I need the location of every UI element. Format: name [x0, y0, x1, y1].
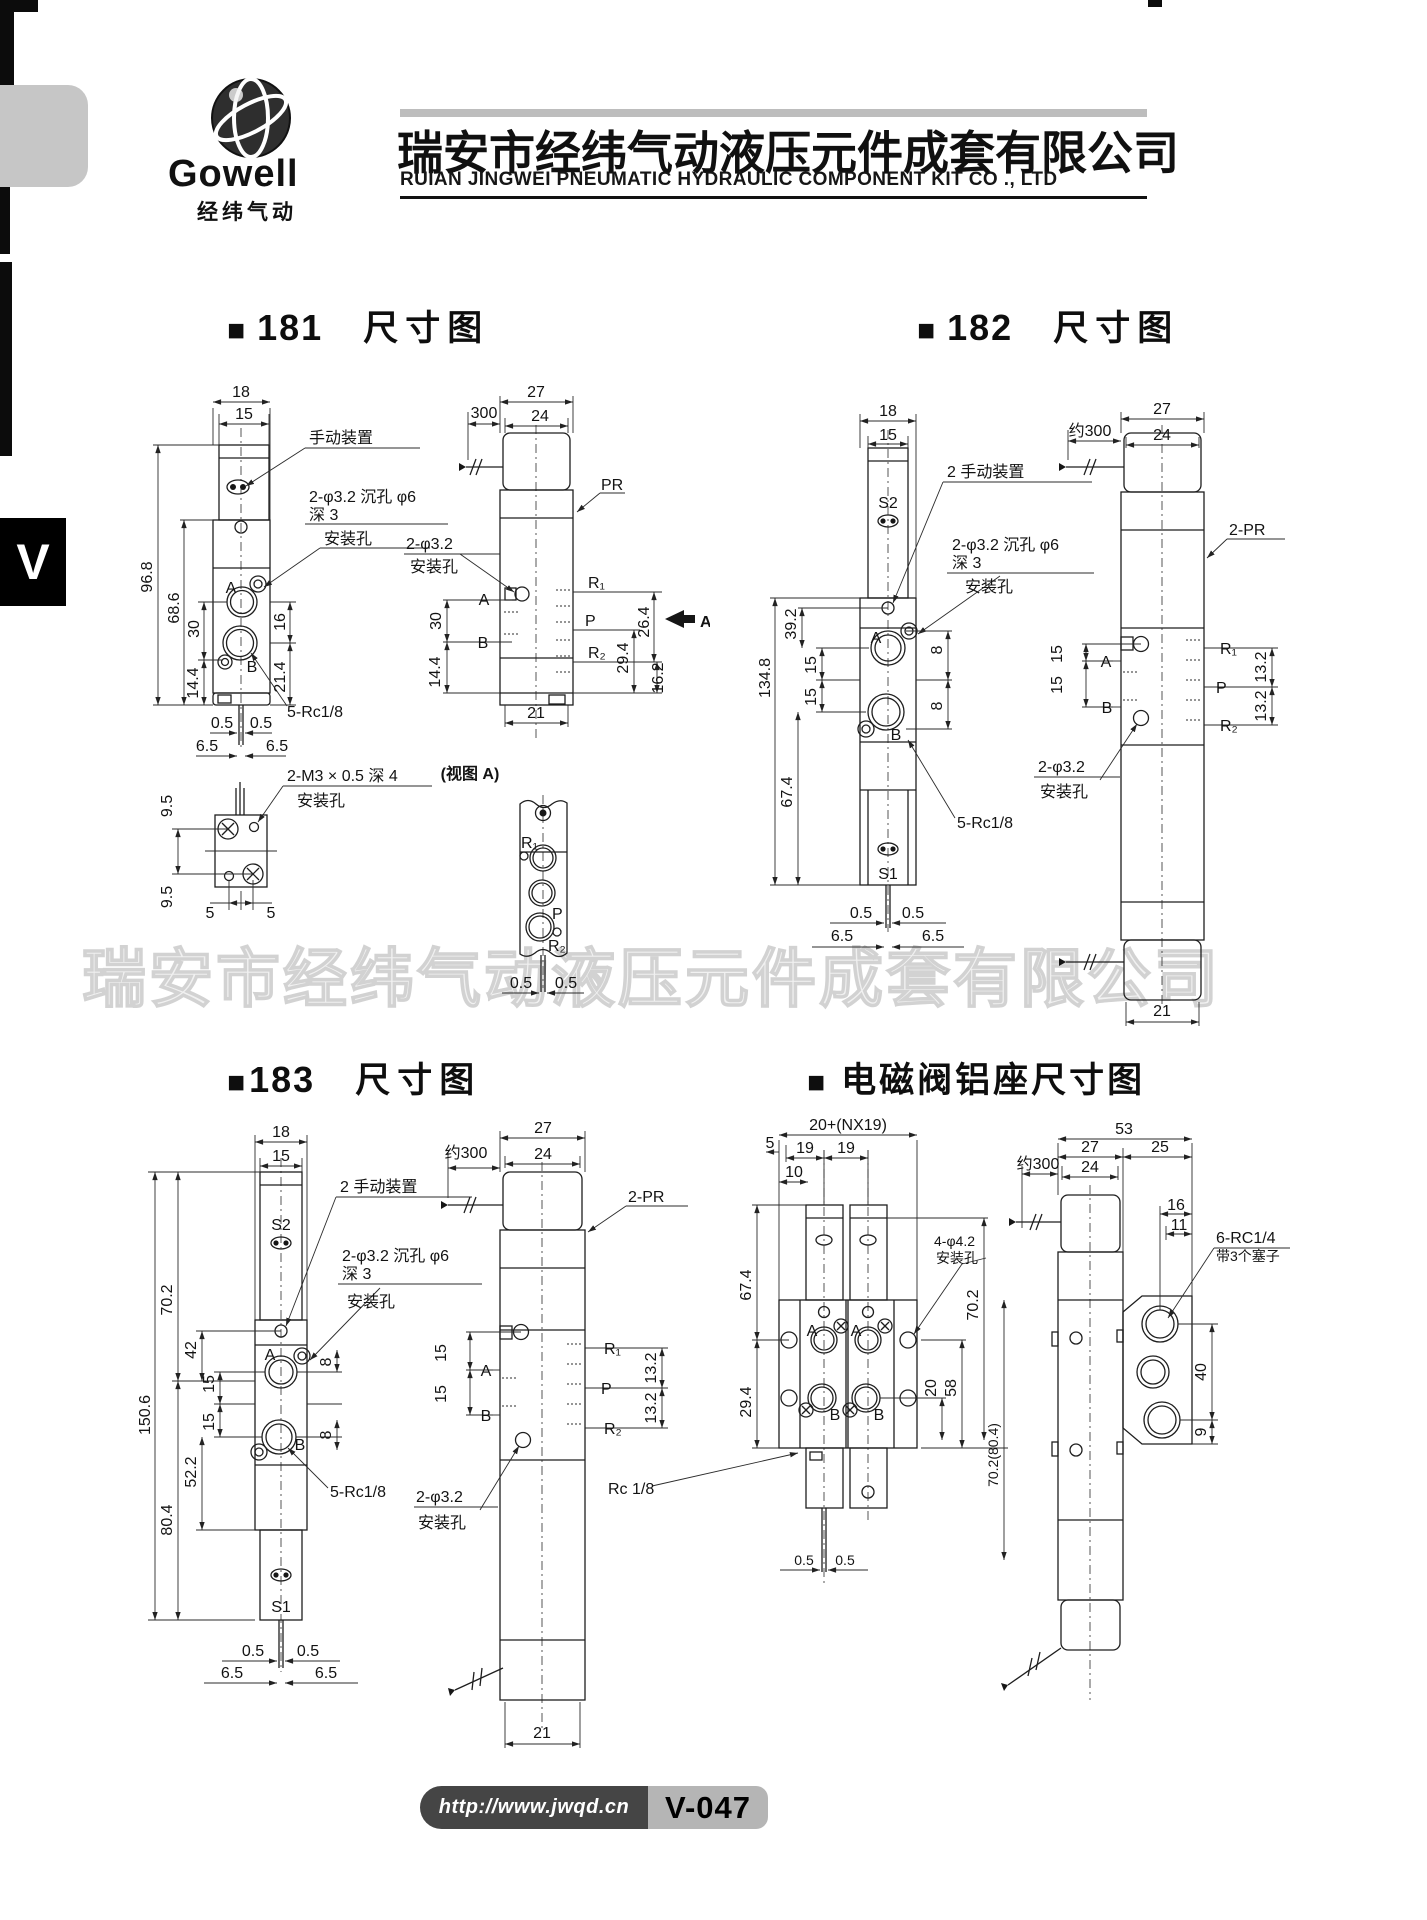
view-a-caption: (视图 A) — [441, 764, 500, 783]
dim: 13.2 — [1253, 690, 1270, 721]
annotation-rc: Rc 1/8 — [608, 1481, 654, 1498]
dim: 8 — [318, 1357, 335, 1366]
dim: 9.5 — [159, 886, 176, 908]
dim: 26.4 — [636, 606, 653, 637]
port-label: A — [807, 1323, 818, 1340]
logo-wordmark: Gowell — [168, 153, 299, 196]
port-label: A — [481, 1363, 492, 1380]
dim: 5 — [267, 905, 276, 922]
annotation-mount-hole: 安装孔 — [936, 1250, 978, 1266]
dim: 9.5 — [159, 795, 176, 817]
thread-hatch — [504, 590, 571, 672]
footer-url: http://www.jwqd.cn — [420, 1786, 648, 1829]
corner-decoration — [0, 85, 88, 187]
thread-hatch — [1123, 640, 1202, 720]
logo-subtext: 经纬气动 — [197, 196, 297, 226]
port-label: A — [1101, 654, 1112, 671]
dim: 70.2 — [965, 1289, 982, 1320]
dim: 0.5 — [794, 1552, 814, 1568]
port-label-r2: R₂ — [588, 645, 606, 662]
dim: 15 — [201, 1375, 218, 1393]
dim: 0.5 — [510, 975, 532, 992]
dim: 67.4 — [738, 1269, 755, 1300]
dim: 29.4 — [738, 1386, 755, 1417]
dim: 150.6 — [137, 1395, 154, 1435]
dims-182-front — [770, 414, 1094, 947]
section-title-183: ■ 183 尺寸图 — [227, 1052, 481, 1103]
port-label: B — [1102, 700, 1113, 717]
annotation-mount-hole: 安装孔 — [324, 530, 372, 548]
port-label: B — [830, 1407, 841, 1424]
dim: 21 — [527, 705, 545, 722]
thread-hatch — [502, 1344, 583, 1424]
port-label: B — [247, 659, 258, 676]
port-label-r1: R₁ — [588, 575, 605, 592]
annotation-hole: 2-φ3.2 沉孔 φ6 — [309, 488, 416, 506]
dim: 18 — [879, 403, 897, 420]
valve-182-side-outline — [1059, 433, 1204, 1000]
dim: 24 — [1081, 1159, 1099, 1176]
dim: 16 — [1167, 1197, 1185, 1214]
dim: 67.4 — [779, 776, 796, 807]
drawing-181: 18 15 96.8 68.6 30 14.4 16 21.4 0.5 0.5 … — [130, 370, 710, 1020]
port-label: B — [874, 1407, 885, 1424]
annotation-hole: 4-φ4.2 — [934, 1233, 975, 1249]
section-title-181: ■ 181 尺寸图 — [227, 300, 489, 351]
dim: 15 — [803, 656, 820, 674]
annotation-mount-hole: 安装孔 — [347, 1293, 395, 1311]
port-label-s2: S2 — [878, 495, 898, 512]
annotation-mount-hole: 安装孔 — [418, 1514, 466, 1532]
section-badge: ■ — [227, 1066, 245, 1100]
port-label-p: P — [552, 906, 563, 923]
dim: 14.4 — [185, 667, 202, 698]
port-label-r2: R₂ — [548, 938, 566, 955]
dim: 9 — [1193, 1427, 1210, 1436]
dim: 15 — [1049, 645, 1066, 663]
header-gray-bar — [400, 109, 1147, 117]
dim: 21.4 — [272, 661, 289, 692]
port-label: A — [479, 592, 490, 609]
section-caption: 尺寸图 — [355, 1052, 481, 1103]
port-label: A — [851, 1323, 862, 1340]
annotation-hole-depth: 深 3 — [952, 554, 981, 572]
port-label-r2: R₂ — [1220, 718, 1238, 735]
dim: 6.5 — [315, 1665, 337, 1682]
header-rule — [400, 196, 1147, 199]
section-number: 181 — [257, 307, 323, 349]
dims-base-side — [1022, 1139, 1290, 1444]
dim: 0.5 — [835, 1552, 855, 1568]
annotation-hole: 2-φ3.2 — [416, 1489, 463, 1506]
dim: 5 — [206, 905, 215, 922]
dim: 约300 — [1017, 1155, 1060, 1173]
port-label-p: P — [1216, 680, 1227, 697]
port-label: A — [871, 630, 882, 647]
dim: 42 — [183, 1341, 200, 1359]
dim: 6.5 — [221, 1665, 243, 1682]
dim: 0.5 — [211, 715, 233, 732]
dim: 134.8 — [757, 658, 774, 698]
section-number: 182 — [947, 307, 1013, 349]
dim: 0.5 — [902, 905, 924, 922]
dim: 96.8 — [139, 561, 156, 592]
side-tab-v: V — [0, 518, 66, 606]
dim: 19 — [837, 1140, 855, 1157]
dim: 15 — [879, 427, 897, 444]
annotation-hole-depth: 深 3 — [342, 1265, 371, 1283]
port-label: B — [891, 727, 902, 744]
dim: 24 — [534, 1146, 552, 1163]
port-label: A — [265, 1347, 276, 1364]
drawing-182: 18 15 S2 2 手动装置 2-φ3.2 沉孔 φ6 深 3 安装孔 134… — [700, 370, 1340, 1050]
section-badge: ■ — [807, 1066, 825, 1100]
dim: 27 — [1153, 401, 1171, 418]
annotation-manual-device: 手动装置 — [309, 429, 373, 447]
valve-181-side-outline — [459, 433, 573, 705]
port-label: A — [226, 580, 237, 597]
dim: 14.4 — [427, 656, 444, 687]
view-direction-arrow-icon — [665, 610, 695, 628]
dim: 15 — [1049, 676, 1066, 694]
dim: 13.2 — [1253, 651, 1270, 682]
dim: 约300 — [1069, 422, 1112, 440]
annotation-hole: 2-φ3.2 — [1038, 759, 1085, 776]
annotation-mount-hole: 安装孔 — [1040, 783, 1088, 801]
annotation-hole: 2-φ3.2 沉孔 φ6 — [342, 1247, 449, 1265]
dim: 0.5 — [555, 975, 577, 992]
dim: 10 — [785, 1164, 803, 1181]
dim: 300 — [471, 405, 498, 422]
dim: 18 — [232, 384, 250, 401]
section-caption: 尺寸图 — [363, 300, 489, 351]
dim: 53 — [1115, 1121, 1133, 1138]
dim: 8 — [929, 701, 946, 710]
section-number: 183 — [249, 1059, 315, 1101]
section-title-base: ■ 电磁阀铝座尺寸图 — [807, 1052, 1145, 1103]
dim: 6.5 — [922, 928, 944, 945]
dim: 52.2 — [183, 1456, 200, 1487]
dim: 20+(NX19) — [809, 1117, 887, 1134]
dim: 70.2(80.4) — [985, 1423, 1001, 1487]
valve-181-bottom-outline — [215, 782, 267, 887]
dim: 15 — [803, 688, 820, 706]
dim: 6.5 — [266, 738, 288, 755]
dim: 27 — [527, 384, 545, 401]
annotation-hole-depth: 深 3 — [309, 506, 338, 524]
dim: 20 — [923, 1379, 940, 1397]
annotation-rc: 6-RC1/4 — [1216, 1230, 1276, 1247]
dim: 30 — [186, 620, 203, 638]
dim: 21 — [533, 1725, 551, 1742]
dims-182-side — [1034, 412, 1285, 1026]
annotation-rc: 5-Rc1/8 — [330, 1484, 386, 1501]
port-label-s2: S2 — [271, 1217, 291, 1234]
dim: 15 — [272, 1148, 290, 1165]
company-name-en: RUIAN JINGWEI PNEUMATIC HYDRAULIC COMPON… — [400, 169, 1058, 191]
dim: 68.6 — [166, 592, 183, 623]
dim: 15 — [201, 1413, 218, 1431]
port-label-p: P — [585, 613, 596, 630]
dim: 6.5 — [831, 928, 853, 945]
valve-182-front-outline — [858, 448, 917, 928]
port-label-s1: S1 — [878, 866, 898, 883]
port-label: B — [295, 1437, 306, 1454]
section-badge: ■ — [227, 314, 245, 348]
section-caption: 电磁阀铝座尺寸图 — [841, 1052, 1145, 1103]
dim: 24 — [531, 408, 549, 425]
dim: 0.5 — [297, 1643, 319, 1660]
dims-181-front — [153, 402, 448, 756]
valve-183-front-outline — [251, 1172, 310, 1668]
port-label-pr: PR — [601, 477, 623, 494]
catalog-page: Gowell 经纬气动 瑞安市经纬气动液压元件成套有限公司 RUIAN JING… — [0, 0, 1427, 1920]
dim: 15 — [433, 1344, 450, 1362]
section-caption: 尺寸图 — [1053, 300, 1179, 351]
section-badge: ■ — [917, 314, 935, 348]
dim: 21 — [1153, 1003, 1171, 1020]
dim: 8 — [929, 645, 946, 654]
dim: 15 — [235, 406, 253, 423]
annotation-mount-hole: 安装孔 — [297, 792, 345, 810]
port-label: B — [481, 1408, 492, 1425]
annotation-hole: 2-φ3.2 — [406, 536, 453, 553]
dims-183-front — [148, 1135, 482, 1683]
port-label: B — [478, 635, 489, 652]
dims-base-front — [652, 1135, 1008, 1570]
scan-mark — [1148, 0, 1162, 7]
port-label-r1: R₁ — [521, 835, 538, 852]
annotation-rc: 5-Rc1/8 — [957, 815, 1013, 832]
dim: 0.5 — [242, 1643, 264, 1660]
annotation-mount-hole: 安装孔 — [965, 578, 1013, 596]
valve-181-viewa-outline — [520, 801, 567, 993]
dim: 5 — [766, 1135, 775, 1152]
port-label-pr: 2-PR — [1229, 522, 1265, 539]
dim: 29.4 — [615, 642, 632, 673]
scan-mark — [0, 262, 12, 456]
dim: 约300 — [445, 1144, 488, 1162]
drawing-base: 20+(NX19) 5 19 19 10 67.4 29.4 A A B B 4… — [600, 1100, 1327, 1790]
dim: 30 — [428, 612, 445, 630]
base-side-outline — [1001, 1195, 1192, 1691]
dim: 27 — [534, 1120, 552, 1137]
dim: 25 — [1151, 1139, 1169, 1156]
port-label-r1: R₁ — [1220, 641, 1237, 658]
dim: 15 — [433, 1385, 450, 1403]
annotation-m3-hole: 2-M3 × 0.5 深 4 — [287, 767, 398, 785]
annotation-rc: 5-Rc1/8 — [287, 704, 343, 721]
dim: 80.4 — [159, 1504, 176, 1535]
annotation-manual-device: 2 手动装置 — [340, 1178, 417, 1196]
dim: 8 — [318, 1430, 335, 1439]
dim: 24 — [1153, 427, 1171, 444]
annotation-plugs: 带3个塞子 — [1216, 1248, 1280, 1264]
valve-181-front-outline — [213, 445, 270, 745]
port-label-s1: S1 — [271, 1599, 291, 1616]
dim: 0.5 — [250, 715, 272, 732]
manifold-outline — [779, 1205, 917, 1572]
annotation-manual-device: 2 手动装置 — [947, 463, 1024, 481]
dim: 16.2 — [650, 662, 667, 693]
dim: 19 — [796, 1140, 814, 1157]
dim: 39.2 — [783, 608, 800, 639]
dim: 18 — [272, 1124, 290, 1141]
dim: 16 — [272, 613, 289, 631]
valve-183-side-outline — [441, 1172, 585, 1700]
footer-page-number: V-047 — [648, 1786, 768, 1829]
section-title-182: ■ 182 尺寸图 — [917, 300, 1179, 351]
dim: 0.5 — [850, 905, 872, 922]
dim: 70.2 — [159, 1284, 176, 1315]
annotation-mount-hole: 安装孔 — [410, 558, 458, 576]
dim: 11 — [1171, 1217, 1188, 1234]
dim: 6.5 — [196, 738, 218, 755]
dim: 27 — [1081, 1139, 1099, 1156]
dim: 40 — [1193, 1363, 1210, 1381]
dim: 58 — [943, 1379, 960, 1397]
annotation-hole: 2-φ3.2 沉孔 φ6 — [952, 536, 1059, 554]
